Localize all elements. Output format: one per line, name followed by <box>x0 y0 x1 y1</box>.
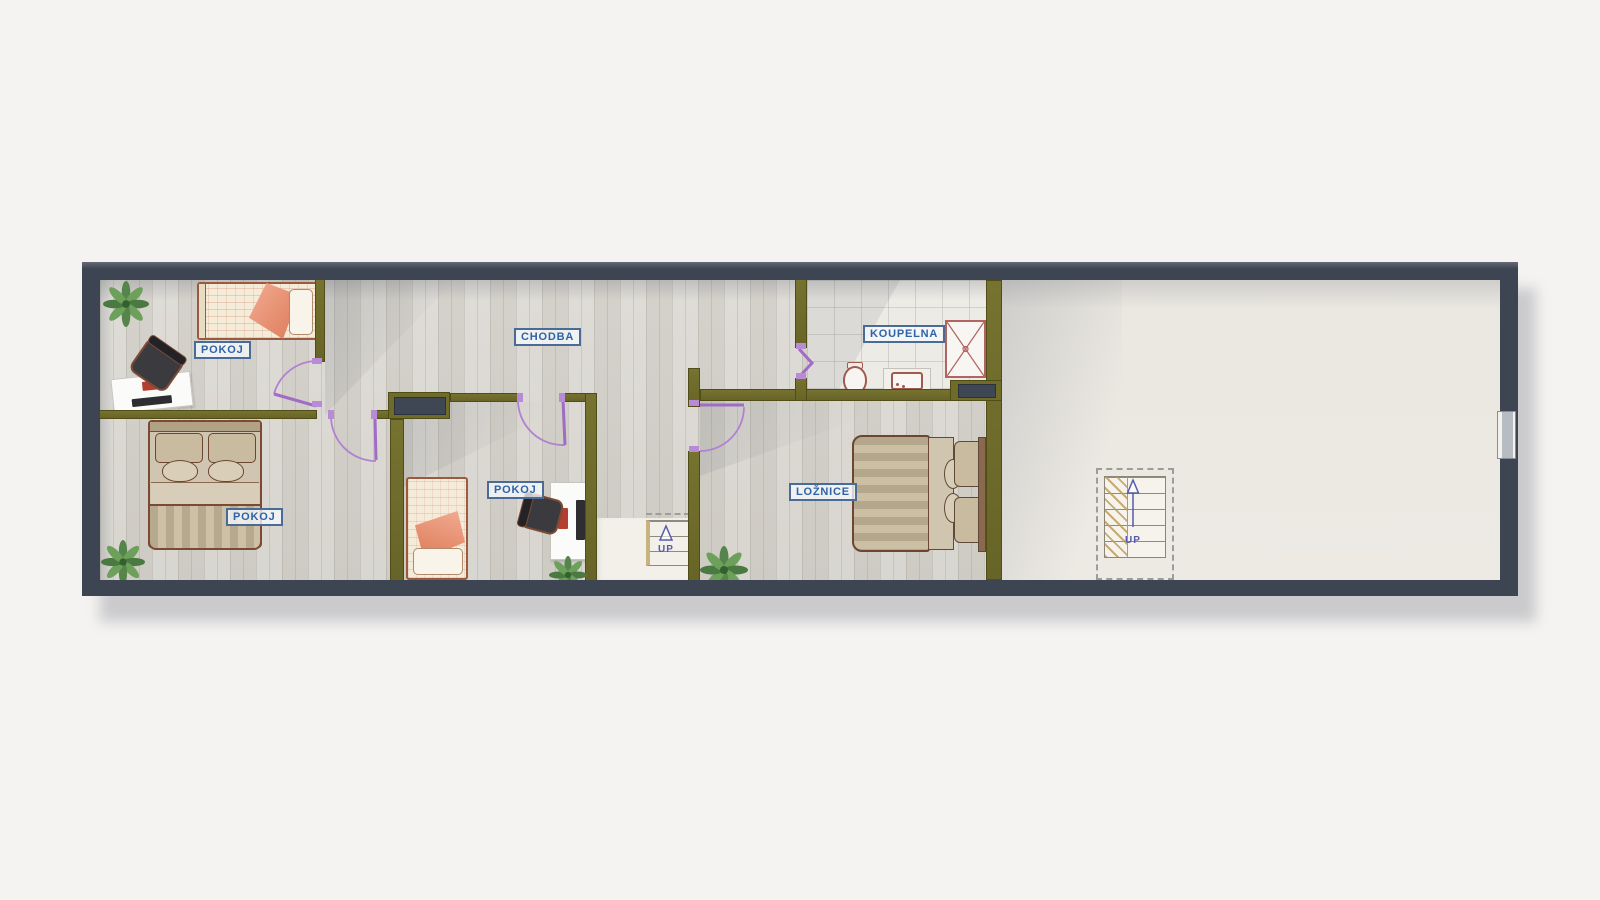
pillow <box>208 433 256 463</box>
wall <box>390 419 404 580</box>
window-icon <box>1497 411 1516 459</box>
room-label-chodba: CHODBA <box>514 328 581 346</box>
room-label-pokoj-1: POKOJ <box>194 341 251 359</box>
plant <box>549 556 587 580</box>
sink-basin <box>891 372 923 390</box>
niche-inset <box>394 397 446 415</box>
stair-up-arrow-icon <box>656 524 676 542</box>
plant <box>103 281 149 327</box>
floorplan-canvas: UP UP <box>0 0 1600 900</box>
stair-up-label-right: UP <box>1119 535 1147 546</box>
building-outer-wall: UP UP <box>82 262 1518 596</box>
single-bed <box>197 282 318 340</box>
shower-icon <box>945 320 986 378</box>
bed-footboard <box>199 284 206 338</box>
wall <box>688 368 700 407</box>
monitor-icon <box>132 395 173 407</box>
room-label-koupelna: KOUPELNA <box>863 325 945 343</box>
bed-headboard <box>150 422 260 432</box>
wall <box>315 280 325 362</box>
wall <box>100 410 317 419</box>
monitor-icon <box>576 500 585 540</box>
stair-dashed-line <box>646 513 690 515</box>
room-label-loznice: LOŽNICE <box>789 483 857 501</box>
wall <box>795 280 807 348</box>
pillow <box>155 433 203 463</box>
shower <box>945 320 986 378</box>
pillow <box>289 289 313 335</box>
room-label-pokoj-2: POKOJ <box>226 508 283 526</box>
plant <box>101 540 145 580</box>
faucet-icon <box>896 383 899 386</box>
wall <box>585 393 597 580</box>
single-bed <box>406 477 468 580</box>
double-bed <box>852 435 986 552</box>
wall-divider <box>986 280 1002 580</box>
striped-duvet <box>852 435 930 552</box>
unfinished-room-floor <box>1002 280 1500 580</box>
stair-up-arrow-icon <box>1123 478 1143 530</box>
cushion <box>162 460 198 482</box>
faucet-icon <box>902 385 905 388</box>
bed-sheet <box>151 482 259 506</box>
cushion <box>208 460 244 482</box>
wall <box>688 451 700 580</box>
niche-inset <box>958 384 996 398</box>
plant <box>700 546 748 580</box>
wall <box>700 389 955 401</box>
floorplan-interior: UP UP <box>100 280 1500 580</box>
pillow <box>413 548 463 575</box>
wall <box>795 378 807 401</box>
wall-niche <box>950 380 1002 401</box>
double-bed <box>148 420 262 548</box>
wall <box>450 393 522 402</box>
room-label-pokoj-3: POKOJ <box>487 481 544 499</box>
wall-niche <box>388 392 450 419</box>
bed-headboard <box>978 437 986 552</box>
stair-up-label-middle: UP <box>650 544 682 555</box>
